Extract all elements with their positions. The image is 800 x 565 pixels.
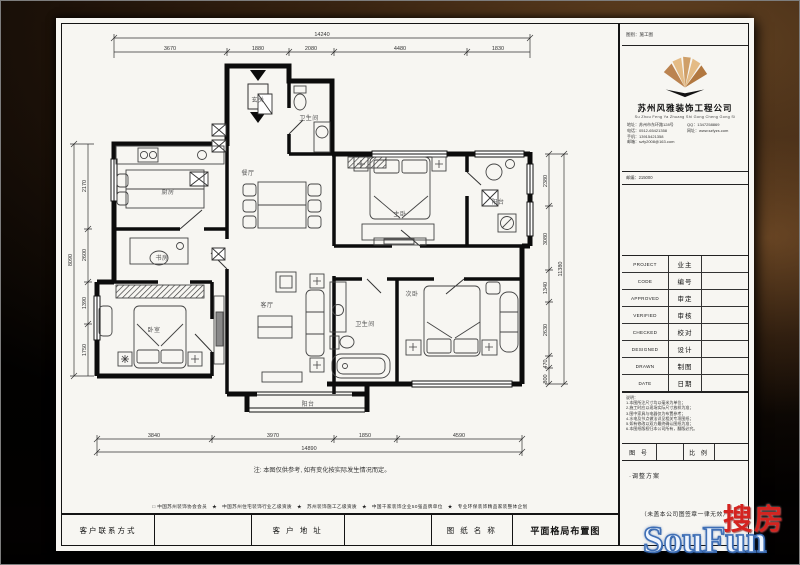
- dim-value: 800: [543, 374, 549, 383]
- row-label-en: DESIGNED: [622, 341, 669, 357]
- zip-note: 邮编：215000: [622, 172, 748, 185]
- titleblock-spacer: [622, 185, 748, 256]
- room-label: 次卧: [405, 290, 418, 298]
- row-label-en: APPROVED: [622, 290, 669, 306]
- contact-left: 地址：苏州市东环路128号 电话：0512-65421358 手机：139154…: [627, 122, 683, 145]
- main-drawing-area: 厨房 书房 卧室 玄关 卫生间 餐厅 客厅 主卧 阳台 卫生间 次卧 阳台: [62, 24, 620, 545]
- table-row: CHECKED校对: [622, 324, 748, 341]
- room-label: 厨房: [161, 188, 174, 196]
- dim-value: 1340: [543, 282, 549, 294]
- dim-value: 2080: [305, 46, 317, 52]
- dim-total: 8090: [68, 254, 74, 266]
- row-label-cn: 编号: [669, 273, 702, 289]
- plan-note: 注: 本图仅供参考, 如有变化按实际发生情况而定。: [254, 466, 391, 474]
- figure-no-value: [657, 444, 684, 460]
- credentials-line: □ 中国苏州装饰协会会员 ★ 中国苏州住宅装饰行业乙级资质 ★ 苏州装饰施工乙级…: [62, 500, 618, 513]
- company-logo-fan-icon: [654, 49, 716, 101]
- table-row: APPROVED审定: [622, 290, 748, 307]
- dim-value: 2600: [82, 249, 88, 261]
- lamp-symbols: [121, 160, 493, 369]
- room-label: 主卧: [393, 210, 406, 218]
- dim-value: 4480: [394, 46, 406, 52]
- row-label-cn: 制图: [669, 358, 702, 374]
- table-row: VERIFIED审核: [622, 307, 748, 324]
- drawing-name-value: 平面格局布置图: [513, 515, 618, 545]
- row-value: [702, 375, 748, 391]
- row-value: [702, 341, 748, 357]
- room-label: 阳台: [301, 400, 314, 408]
- floor-plan-region: 厨房 书房 卧室 玄关 卫生间 餐厅 客厅 主卧 阳台 卫生间 次卧 阳台: [62, 24, 618, 500]
- row-value: [702, 307, 748, 323]
- row-value: [702, 358, 748, 374]
- dim-value: 2170: [82, 180, 88, 192]
- company-header: 苏州风雅装饰工程公司 Su Zhou Feng Ya Zhuang Shi Go…: [622, 46, 748, 172]
- dim-total: 11380: [558, 262, 564, 277]
- company-contact: 地址：苏州市东环路128号 电话：0512-65421358 手机：139154…: [622, 119, 748, 145]
- dim-value: 3670: [164, 46, 176, 52]
- row-label-en: VERIFIED: [622, 307, 669, 323]
- dim-value: 1850: [359, 433, 371, 439]
- table-row: DESIGNED设计: [622, 341, 748, 358]
- table-row: CODE编号: [622, 273, 748, 290]
- room-label: 餐厅: [241, 169, 254, 177]
- customer-contact-label: 客户联系方式: [62, 515, 155, 545]
- dim-value: 2380: [543, 175, 549, 187]
- scale-label: 比 例: [684, 444, 715, 460]
- adjust-note: ·调整方案: [629, 471, 660, 480]
- row-value: [702, 256, 748, 272]
- row-label-cn: 审定: [669, 290, 702, 306]
- titleblock-top-note: 图别：施工图: [622, 24, 748, 46]
- room-label: 书房: [155, 254, 168, 262]
- dim-value: 1880: [252, 46, 264, 52]
- figure-scale-row: 图 号 比 例: [622, 444, 748, 461]
- room-label: 玄关: [251, 96, 264, 104]
- sheet-border: 厨房 书房 卧室 玄关 卫生间 餐厅 客厅 主卧 阳台 卫生间 次卧 阳台: [61, 23, 749, 546]
- row-value: [702, 324, 748, 340]
- customer-contact-value: [155, 515, 252, 545]
- dim-value: 4590: [453, 433, 465, 439]
- room-label: 卧室: [147, 326, 160, 334]
- room-label: 阳台: [491, 198, 504, 206]
- table-row: DRAWN制图: [622, 358, 748, 375]
- contact-line: 网址：www.szfyzs.com: [687, 128, 743, 134]
- scale-value: [715, 444, 748, 460]
- dim-total: 14890: [301, 446, 316, 452]
- dim-value: 3970: [267, 433, 279, 439]
- customer-address-label: 客 户 地 址: [252, 515, 345, 545]
- interior-walls: [114, 81, 530, 394]
- validity-note: （未盖本公司图签章一律无效）: [622, 509, 748, 518]
- approval-table: PROJECT业主 CODE编号 APPROVED审定 VERIFIED审核 C…: [622, 256, 748, 393]
- contact-line: 邮箱：szfy2008@163.com: [627, 139, 683, 145]
- row-label-en: DRAWN: [622, 358, 669, 374]
- room-label: 卫生间: [355, 320, 375, 328]
- windows: [94, 151, 533, 412]
- row-value: [702, 273, 748, 289]
- cabinet-boxes: [190, 94, 498, 260]
- furniture: [99, 86, 518, 382]
- contact-right: QQ：1347258869 网址：www.szfyzs.com: [687, 122, 743, 145]
- row-label-cn: 设计: [669, 341, 702, 357]
- row-label-cn: 审核: [669, 307, 702, 323]
- drawing-name-label: 图 纸 名 称: [432, 515, 513, 545]
- bottom-field-strip: 客户联系方式 客 户 地 址 图 纸 名 称 平面格局布置图: [62, 513, 618, 545]
- row-label-cn: 日期: [669, 375, 702, 391]
- dim-value: 2630: [543, 324, 549, 336]
- row-label-en: CHECKED: [622, 324, 669, 340]
- row-value: [702, 290, 748, 306]
- title-block: 图别：施工图 苏州风雅装饰工程公司 Su Zhou Feng Ya Zhuang…: [622, 24, 748, 545]
- note-line: 6.本图纸版权归本公司所有，翻版必究。: [626, 426, 744, 431]
- row-label-cn: 业主: [669, 256, 702, 272]
- dim-value: 3080: [543, 233, 549, 245]
- row-label-en: CODE: [622, 273, 669, 289]
- table-row: PROJECT业主: [622, 256, 748, 273]
- dim-value: 1390: [82, 297, 88, 309]
- dim-value: 1830: [492, 46, 504, 52]
- photo-background: 厨房 书房 卧室 玄关 卫生间 餐厅 客厅 主卧 阳台 卫生间 次卧 阳台: [0, 0, 800, 565]
- dimension-values: 3670 1880 2080 4480 1830 14240 3840 3970…: [68, 32, 564, 452]
- room-label: 卫生间: [299, 114, 319, 122]
- dim-value: 3840: [148, 433, 160, 439]
- figure-no-label: 图 号: [622, 444, 657, 460]
- dim-value: 1750: [82, 344, 88, 356]
- drawing-sheet: 厨房 书房 卧室 玄关 卫生间 餐厅 客厅 主卧 阳台 卫生间 次卧 阳台: [56, 18, 754, 551]
- dim-total: 14240: [314, 32, 329, 38]
- floor-plan-svg: 厨房 书房 卧室 玄关 卫生间 餐厅 客厅 主卧 阳台 卫生间 次卧 阳台: [62, 24, 618, 500]
- titleblock-bottom: ·调整方案 （未盖本公司图签章一律无效）: [622, 461, 748, 545]
- table-row: DATE日期: [622, 375, 748, 392]
- dim-value: 470: [543, 359, 549, 368]
- row-label-cn: 校对: [669, 324, 702, 340]
- customer-address-value: [345, 515, 432, 545]
- room-label: 客厅: [260, 301, 273, 309]
- titleblock-notes: 说明： 1.本图所注尺寸均以毫米为单位； 2.施工时应以现场实际尺寸放样为准； …: [622, 393, 748, 444]
- row-label-en: PROJECT: [622, 256, 669, 272]
- company-name: 苏州风雅装饰工程公司: [637, 102, 732, 114]
- row-label-en: DATE: [622, 375, 669, 391]
